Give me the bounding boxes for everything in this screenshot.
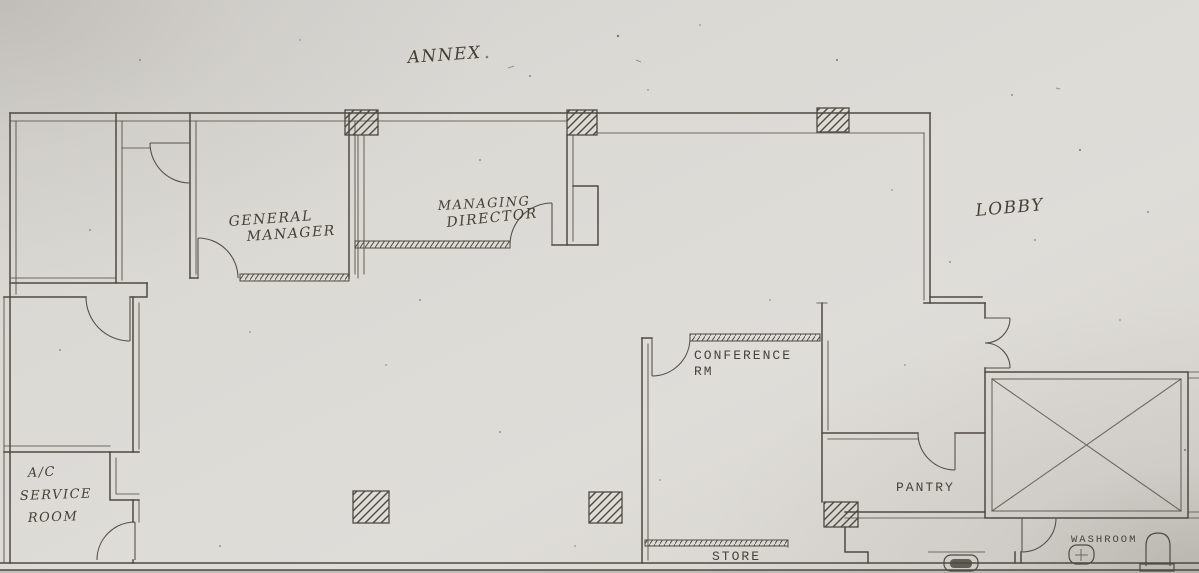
ac-service-label-line1: A/C xyxy=(26,465,56,482)
gm-bottom-wall-hatched xyxy=(240,274,349,281)
conference-label-line1: CONFERENCE xyxy=(694,348,792,363)
ac-service-label-line3: ROOM xyxy=(27,509,79,526)
scanned-floor-plan: ANNEX LOBBY GENERAL MANAGER MANAGING DIR… xyxy=(0,0,1199,573)
floor-plan-drawing: ANNEX LOBBY GENERAL MANAGER MANAGING DIR… xyxy=(0,0,1199,573)
column-top-1 xyxy=(345,110,378,135)
pantry-label: PANTRY xyxy=(896,480,955,495)
column-top-3 xyxy=(817,108,849,132)
ac-service-label-line2: SERVICE xyxy=(20,486,93,504)
washroom-label: WASHROOM xyxy=(1071,534,1137,546)
store-top-wall-hatched xyxy=(645,540,788,546)
column-floor-3 xyxy=(824,502,858,527)
column-floor-2 xyxy=(589,492,622,523)
store-label: STORE xyxy=(712,549,761,564)
md-bottom-wall-hatched xyxy=(355,241,510,248)
conference-top-wall-hatched xyxy=(690,334,820,341)
conference-label-line2: RM xyxy=(694,364,714,379)
column-floor-1 xyxy=(353,491,389,523)
paper-shading-top-left xyxy=(0,0,500,300)
column-top-2 xyxy=(567,110,597,135)
